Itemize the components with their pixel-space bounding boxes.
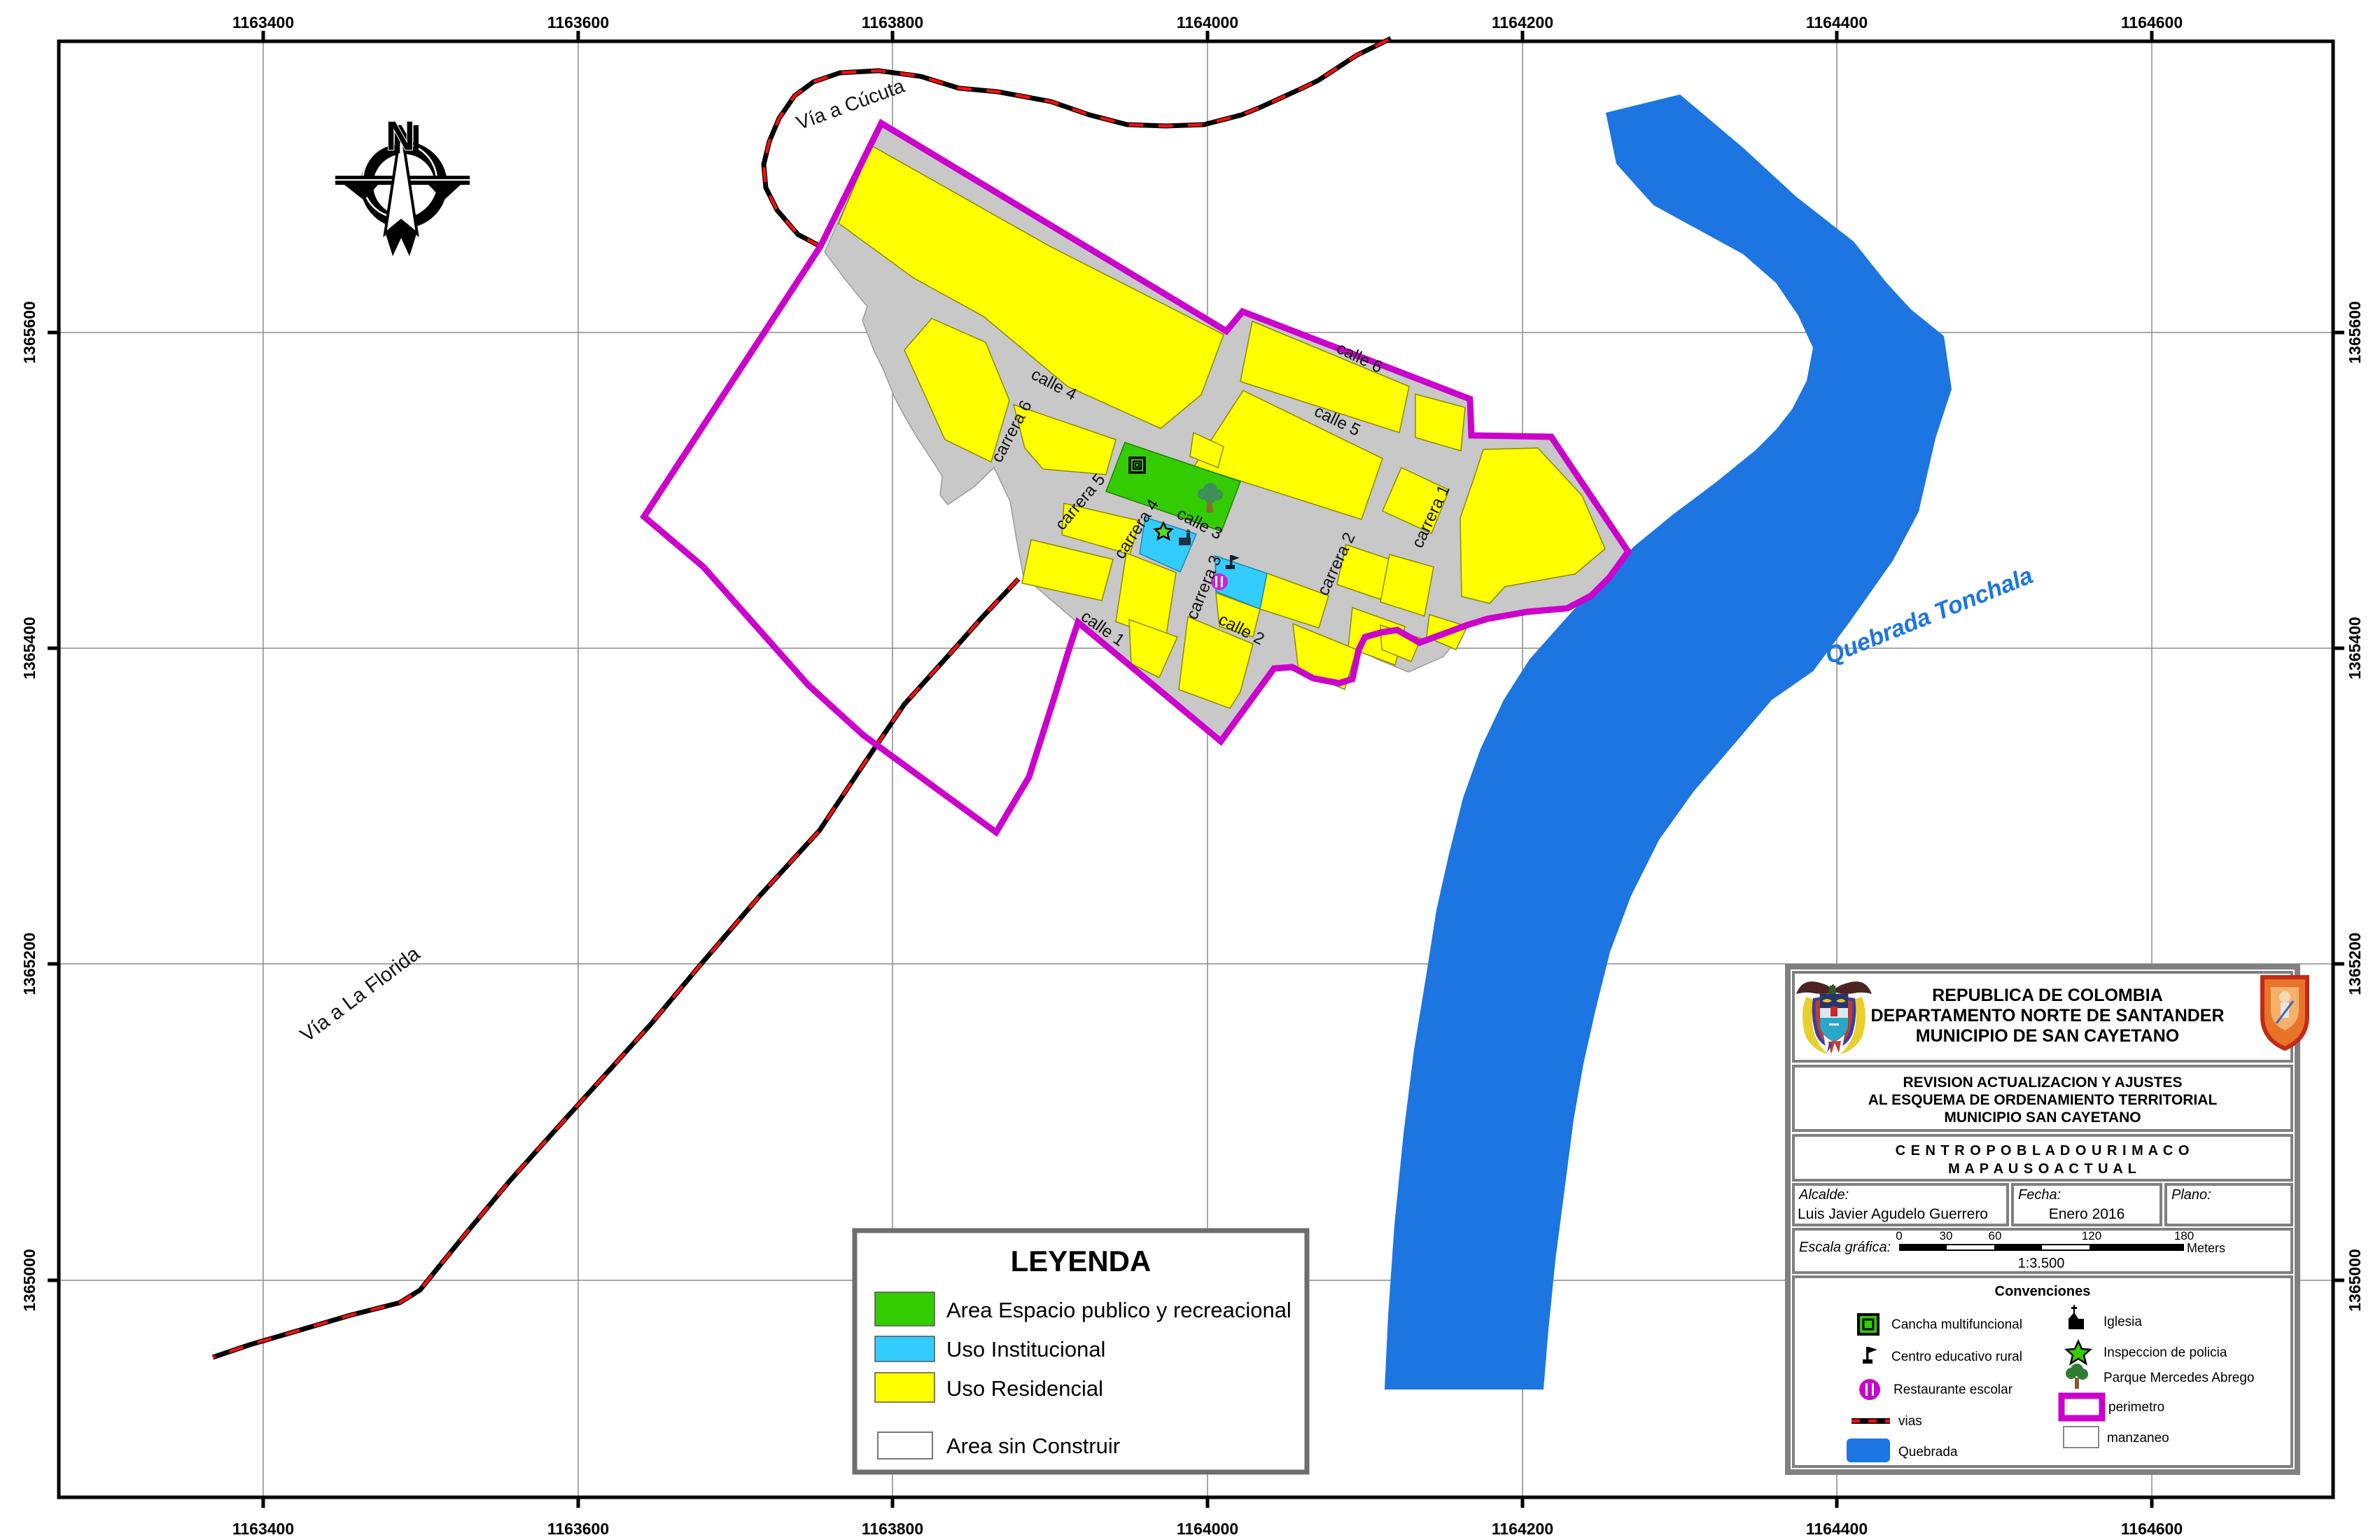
svg-text:Centro educativo rural: Centro educativo rural [1891,1350,2022,1364]
svg-text:Inspeccion de policia: Inspeccion de policia [2103,1345,2227,1360]
svg-text:1163400: 1163400 [232,13,294,31]
svg-text:N: N [386,113,415,159]
svg-text:Luis Javier Agudelo Guerrero: Luis Javier Agudelo Guerrero [1798,1206,1988,1222]
svg-text:Restaurante escolar: Restaurante escolar [1893,1382,2013,1397]
svg-text:60: 60 [1989,1229,2002,1242]
svg-text:perimetro: perimetro [2108,1400,2164,1415]
svg-text:Escala gráfica:: Escala gráfica: [1799,1240,1891,1255]
svg-text:1164400: 1164400 [1806,13,1868,31]
svg-text:M A P A U S O A C T U A L: M A P A U S O A C T U A L [1948,1161,2137,1177]
svg-text:Area sin Construir: Area sin Construir [946,1434,1120,1458]
svg-text:Meters: Meters [2187,1241,2225,1255]
svg-text:LEYENDA: LEYENDA [1011,1245,1151,1277]
svg-text:1365000: 1365000 [2346,1249,2364,1312]
svg-text:Enero 2016: Enero 2016 [2049,1206,2125,1222]
svg-text:DEPARTAMENTO NORTE DE SANTANDE: DEPARTAMENTO NORTE DE SANTANDER [1870,1006,2224,1025]
svg-text:1164200: 1164200 [1492,1520,1553,1538]
svg-text:1365200: 1365200 [20,932,38,995]
svg-text:1163600: 1163600 [547,13,609,31]
svg-text:1365400: 1365400 [2346,617,2364,680]
svg-text:1163800: 1163800 [862,13,923,31]
svg-text:Parque Mercedes Abrego: Parque Mercedes Abrego [2103,1371,2254,1385]
svg-text:Alcalde:: Alcalde: [1798,1187,1849,1203]
svg-text:Uso Residencial: Uso Residencial [946,1376,1103,1401]
svg-text:1163400: 1163400 [232,1520,294,1538]
svg-text:1164000: 1164000 [1177,13,1238,31]
svg-text:1365000: 1365000 [20,1249,38,1312]
svg-text:vias: vias [1898,1414,1922,1429]
svg-text:1365600: 1365600 [2346,301,2364,364]
svg-text:AL ESQUEMA DE ORDENAMIENTO TER: AL ESQUEMA DE ORDENAMIENTO TERRITORIAL [1868,1092,2218,1108]
svg-text:manzaneo: manzaneo [2107,1431,2169,1445]
svg-text:REVISION ACTUALIZACION Y AJUST: REVISION ACTUALIZACION Y AJUSTES [1903,1074,2182,1091]
svg-text:Quebrada: Quebrada [1898,1445,1958,1459]
svg-text:1365400: 1365400 [20,617,38,680]
svg-text:1163800: 1163800 [862,1520,923,1538]
svg-text:120: 120 [2082,1229,2101,1242]
svg-text:Iglesia: Iglesia [2103,1315,2142,1329]
svg-text:Convenciones: Convenciones [1995,1284,2091,1299]
svg-text:Plano:: Plano: [2171,1187,2211,1203]
svg-text:Uso Institucional: Uso Institucional [946,1337,1105,1361]
svg-text:1365200: 1365200 [2346,932,2364,995]
svg-text:1365600: 1365600 [20,301,38,364]
svg-text:1163600: 1163600 [547,1520,609,1538]
svg-text:MUNICIPIO DE SAN CAYETANO: MUNICIPIO DE SAN CAYETANO [1916,1026,2179,1046]
svg-text:1164600: 1164600 [2121,13,2183,31]
svg-text:Area Espacio publico y recreac: Area Espacio publico y recreacional [946,1298,1291,1322]
svg-text:REPUBLICA DE COLOMBIA: REPUBLICA DE COLOMBIA [1932,986,2163,1005]
svg-text:0: 0 [1896,1229,1902,1242]
svg-text:MUNICIPIO SAN CAYETANO: MUNICIPIO SAN CAYETANO [1944,1109,2141,1126]
svg-text:Cancha multifuncional: Cancha multifuncional [1891,1317,2022,1332]
svg-text:1164000: 1164000 [1177,1520,1238,1538]
svg-text:1164200: 1164200 [1492,13,1553,31]
svg-text:Fecha:: Fecha: [2018,1187,2061,1203]
svg-text:1164600: 1164600 [2121,1520,2183,1538]
svg-text:1:3.500: 1:3.500 [2018,1256,2065,1271]
svg-text:C E N T R O P O B L A D O: C E N T R O P O B L A D O U R I M A C O [1896,1143,2190,1158]
svg-text:1164400: 1164400 [1806,1520,1868,1538]
svg-text:30: 30 [1940,1229,1953,1242]
